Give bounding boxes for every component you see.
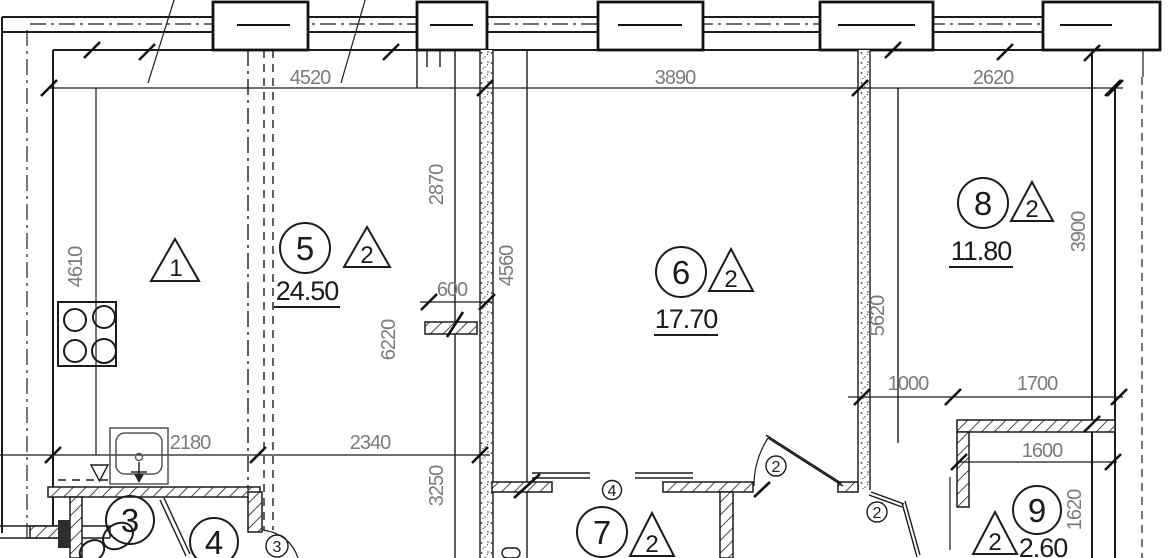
dim-5620: 5620 bbox=[867, 295, 889, 336]
room-6-zone: 2 bbox=[724, 266, 737, 293]
dim-3250: 3250 bbox=[426, 465, 448, 506]
door-marker-a: 2 bbox=[766, 456, 786, 476]
drain-triangle-icon bbox=[91, 465, 108, 481]
room-6-marker: 6 2 17.70 bbox=[654, 247, 753, 335]
dim-4610: 4610 bbox=[65, 246, 87, 287]
door-marker-b-label: 2 bbox=[873, 505, 882, 522]
room-4-number: 4 bbox=[205, 524, 223, 558]
room-9-zone: 2 bbox=[988, 529, 1001, 556]
dim-1000: 1000 bbox=[888, 373, 929, 395]
dim-2340: 2340 bbox=[350, 432, 391, 454]
windows bbox=[213, 2, 1160, 50]
exterior-walls bbox=[0, 17, 1143, 558]
room-8-marker: 8 2 11.80 bbox=[949, 178, 1053, 267]
room-3-number: 3 bbox=[121, 502, 139, 539]
demolished-walls bbox=[58, 50, 273, 530]
dim-1600: 1600 bbox=[1022, 440, 1063, 462]
dim-1620: 1620 bbox=[1064, 489, 1086, 530]
floor-plan-drawing: 4520 3890 2620 4610 2870 6220 4560 600 3… bbox=[0, 0, 1170, 558]
door-room4 bbox=[160, 498, 190, 556]
interior-walls bbox=[48, 50, 1115, 558]
dim-2870: 2870 bbox=[426, 164, 448, 205]
dim-3890: 3890 bbox=[655, 67, 696, 89]
room-8-area: 11.80 bbox=[951, 236, 1012, 266]
door-marker-c-label: 3 bbox=[273, 539, 282, 556]
wall-pier bbox=[58, 520, 70, 548]
room-3-marker: 3 bbox=[106, 496, 154, 544]
room-5-number: 5 bbox=[296, 230, 314, 267]
room-7-number: 7 bbox=[593, 514, 611, 551]
room-4-marker: 4 bbox=[190, 518, 238, 558]
room-5-area: 24.50 bbox=[276, 276, 339, 306]
zone-1-label: 1 bbox=[169, 255, 182, 282]
room-6-number: 6 bbox=[672, 254, 690, 291]
floor-plan-canvas: 4520 3890 2620 4610 2870 6220 4560 600 3… bbox=[0, 0, 1170, 558]
zone-triangle-1: 1 bbox=[151, 239, 199, 282]
room-5-zone: 2 bbox=[360, 242, 373, 269]
room-9-number: 9 bbox=[1028, 492, 1046, 529]
dim-3900: 3900 bbox=[1068, 211, 1090, 252]
dimension-lines bbox=[0, 0, 1123, 462]
room-7-marker: 4 7 2 bbox=[577, 481, 674, 558]
room-7-zone: 2 bbox=[645, 531, 658, 558]
door-marker-a-label: 2 bbox=[772, 459, 781, 476]
dim-6220: 6220 bbox=[378, 319, 400, 360]
dim-4520: 4520 bbox=[290, 67, 331, 89]
dimension-texts: 4520 3890 2620 4610 2870 6220 4560 600 3… bbox=[65, 67, 1090, 530]
room-7-sub: 4 bbox=[608, 483, 617, 500]
stove-icon bbox=[58, 302, 116, 366]
door-marker-c: 3 bbox=[266, 535, 288, 557]
room-6-area: 17.70 bbox=[655, 304, 718, 334]
room-9-marker: 9 2 2.60 bbox=[973, 486, 1067, 558]
dim-1700: 1700 bbox=[1017, 373, 1058, 395]
room-5-marker: 5 2 24.50 bbox=[274, 223, 390, 307]
corridor-fixture bbox=[502, 548, 520, 558]
dim-600: 600 bbox=[437, 279, 468, 301]
sink-icon bbox=[110, 428, 168, 484]
room-8-zone: 2 bbox=[1025, 196, 1038, 223]
door-marker-b: 2 bbox=[867, 502, 887, 522]
room-8-number: 8 bbox=[974, 185, 992, 222]
room-9-area: 2.60 bbox=[1019, 533, 1068, 558]
dim-4560: 4560 bbox=[496, 245, 518, 286]
dim-2620: 2620 bbox=[973, 67, 1014, 89]
dim-2180: 2180 bbox=[170, 432, 211, 454]
